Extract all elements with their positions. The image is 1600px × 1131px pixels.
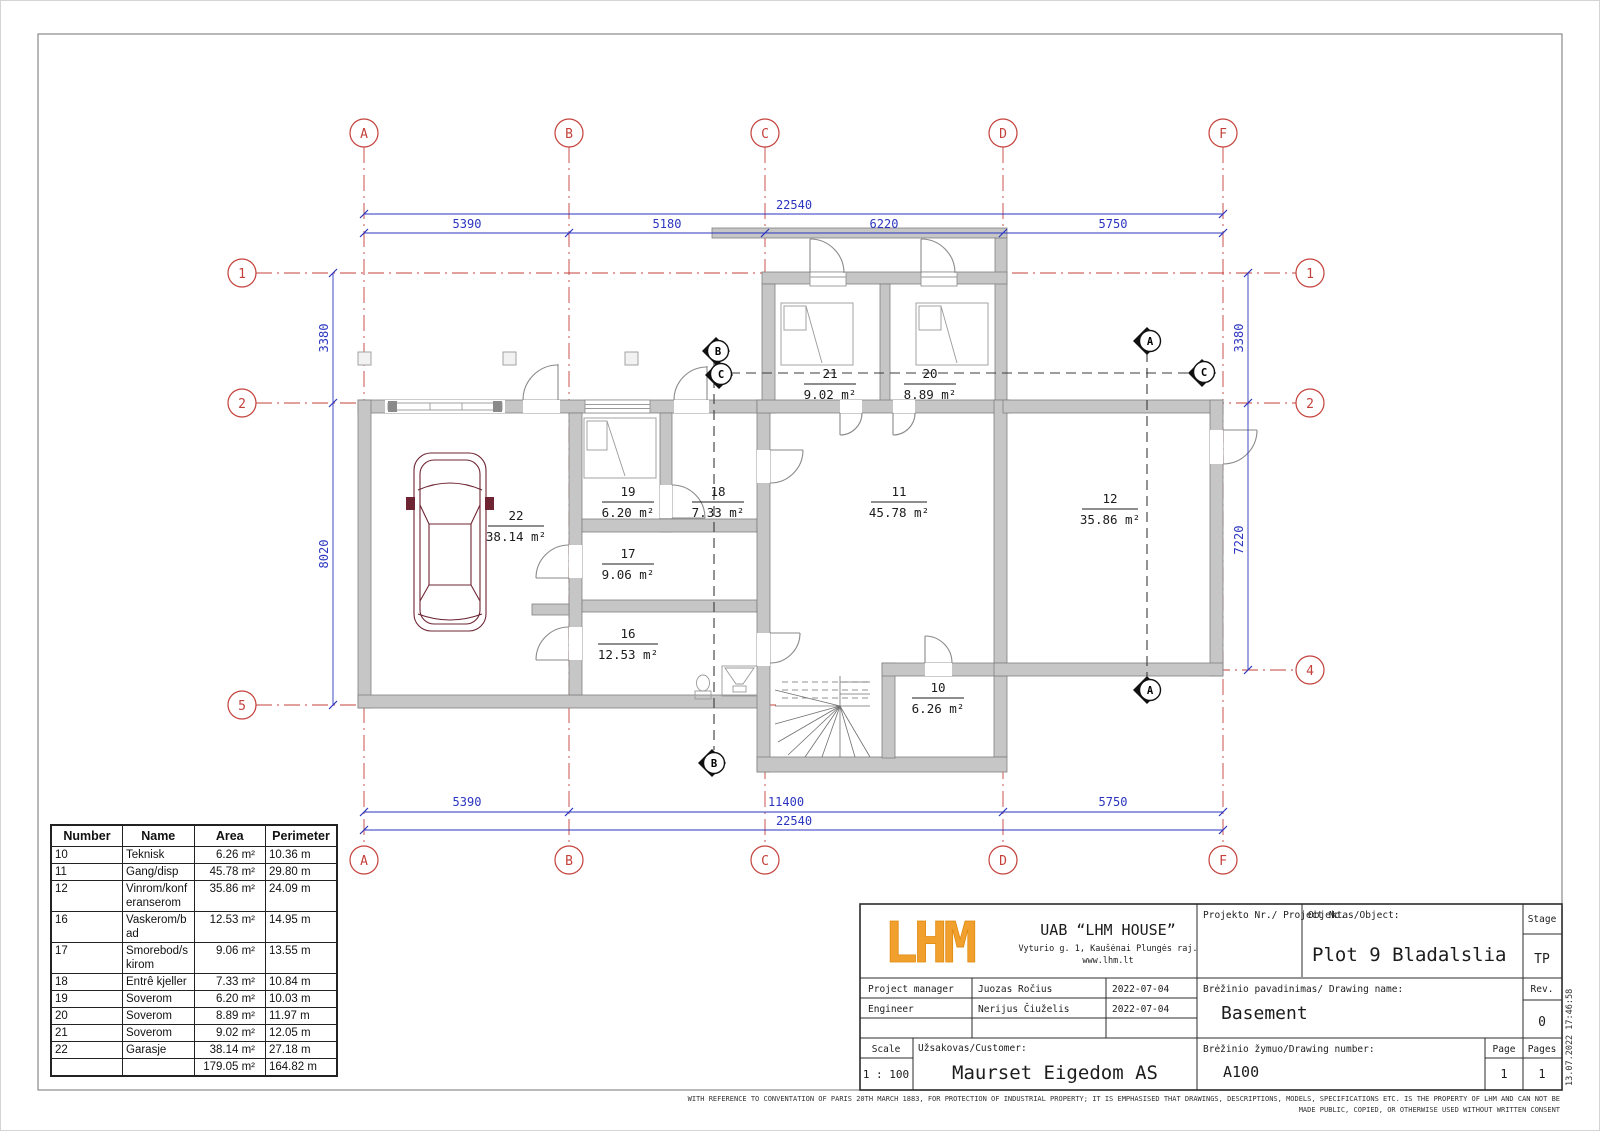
rev-label: Rev. [1531,984,1554,995]
schedule-cell: 10.03 m [266,991,338,1008]
grid-bubble-c-bottom: C [761,854,769,869]
dim-top-total: 22540 [776,198,812,212]
disclaimer-line2: MADE PUBLIC, COPIED, OR OTHERWISE USED W… [1299,1106,1561,1114]
customer-value: Maurset Eigedom AS [952,1062,1158,1084]
schedule-cell: 12 [51,881,123,912]
schedule-cell: 22 [51,1042,123,1059]
customer-label: Užsakovas/Customer: [918,1043,1027,1054]
drawing-number-value: A100 [1223,1063,1259,1081]
schedule-cell: 10.36 m [266,847,338,864]
drawing-name-value: Basement [1221,1003,1308,1024]
dim-left-2: 8020 [317,540,331,569]
dim-left-1: 3380 [317,324,331,353]
dim-bottom-seg-1: 5390 [453,795,482,809]
schedule-cell: 12.53 m² [194,912,266,943]
engineer-value: Nerijus Čiuželis [978,1003,1070,1015]
company-name: UAB “LHM HOUSE” [1040,921,1175,939]
svg-text:9.06 m²: 9.06 m² [602,567,655,582]
grid-bubble-b-top: B [565,127,573,142]
schedule-cell: 9.02 m² [194,1025,266,1042]
grid-bubble-f-bottom: F [1219,854,1227,869]
svg-text:38.14 m²: 38.14 m² [486,529,546,544]
grid-bubble-b-bottom: B [565,854,573,869]
schedule-cell: 45.78 m² [194,864,266,881]
svg-text:22: 22 [508,508,523,523]
section-label-a2: A [1147,685,1154,697]
lhm-logo: LHM [884,911,975,976]
object-label: Objektas/Object: [1308,910,1400,921]
schedule-cell: Soverom [123,1008,195,1025]
schedule-cell: 10.84 m [266,974,338,991]
schedule-row: 10Teknisk6.26 m²10.36 m [51,847,337,864]
room-schedule-table: NumberNameAreaPerimeter 10Teknisk6.26 m²… [50,824,338,1077]
svg-text:9.02 m²: 9.02 m² [804,387,857,402]
company-address: Vyturio g. 1, Kaušėnai Plungės raj. [1018,943,1197,954]
schedule-cell: 13.55 m [266,943,338,974]
schedule-cell: 12.05 m [266,1025,338,1042]
schedule-cell: Soverom [123,991,195,1008]
svg-text:35.86 m²: 35.86 m² [1080,512,1140,527]
svg-text:20: 20 [922,366,937,381]
schedule-row: 16Vaskerom/bad12.53 m²14.95 m [51,912,337,943]
schedule-cell: 14.95 m [266,912,338,943]
schedule-row: 17Smorebod/skirom9.06 m²13.55 m [51,943,337,974]
schedule-cell: Smorebod/skirom [123,943,195,974]
dim-top-seg-1: 5390 [453,217,482,231]
section-label-c: C [718,369,724,381]
engineer-label: Engineer [868,1004,914,1015]
schedule-cell: 16 [51,912,123,943]
schedule-cell: Garasje [123,1042,195,1059]
schedule-cell: 6.26 m² [194,847,266,864]
schedule-row: 18Entrê kjeller7.33 m²10.84 m [51,974,337,991]
schedule-cell: 24.09 m [266,881,338,912]
section-label-c2: C [1201,367,1207,379]
grid-bubble-a-bottom: A [360,854,368,869]
grid-bubble-5-left: 5 [238,699,246,714]
svg-text:12: 12 [1102,491,1117,506]
schedule-col-header: Area [194,825,266,847]
drawing-name-label: Brėžinio pavadinimas/ Drawing name: [1203,984,1403,995]
stage-label: Stage [1528,914,1557,925]
section-label-b2: B [711,758,717,770]
schedule-cell: 11.97 m [266,1008,338,1025]
schedule-header-row: NumberNameAreaPerimeter [51,825,337,847]
svg-text:16: 16 [620,626,635,641]
drawing-sheet: B C B A A C 2238.14 m² 196. [0,0,1600,1131]
schedule-cell: Vaskerom/bad [123,912,195,943]
schedule-cell: 19 [51,991,123,1008]
schedule-row: 11Gang/disp45.78 m²29.80 m [51,864,337,881]
schedule-cell: 17 [51,943,123,974]
grid-bubble-4-right: 4 [1306,664,1314,679]
project-manager-label: Project manager [868,984,954,995]
schedule-cell: 11 [51,864,123,881]
schedule-cell: 21 [51,1025,123,1042]
schedule-cell: 9.06 m² [194,943,266,974]
title-block: LHM UAB “LHM HOUSE” Vyturio g. 1, Kaušėn… [860,904,1562,1090]
plot-timestamp: 13.07.2022 17:46:58 [1565,989,1575,1086]
schedule-col-header: Perimeter [266,825,338,847]
schedule-row: 179.05 m²164.82 m [51,1059,337,1077]
svg-text:6.26 m²: 6.26 m² [912,701,965,716]
schedule-cell: 164.82 m [266,1059,338,1077]
schedule-col-header: Name [123,825,195,847]
grid-bubble-d-top: D [999,127,1007,142]
svg-text:11: 11 [891,484,906,499]
schedule-row: 19Soverom6.20 m²10.03 m [51,991,337,1008]
schedule-cell: 7.33 m² [194,974,266,991]
schedule-cell: Vinrom/konferanserom [123,881,195,912]
svg-text:45.78 m²: 45.78 m² [869,505,929,520]
schedule-cell: Gang/disp [123,864,195,881]
dim-right-2: 7220 [1232,526,1246,555]
svg-text:8.89 m²: 8.89 m² [904,387,957,402]
dim-bottom-seg-3: 5750 [1099,795,1128,809]
stage-value: TP [1534,952,1550,967]
svg-text:17: 17 [620,546,635,561]
grid-bubble-2-left: 2 [238,397,246,412]
dim-right-1: 3380 [1232,324,1246,353]
page-value: 1 [1500,1067,1507,1081]
pages-value: 1 [1538,1067,1545,1081]
project-manager-date: 2022-07-04 [1112,984,1169,995]
schedule-cell: 38.14 m² [194,1042,266,1059]
schedule-cell: 6.20 m² [194,991,266,1008]
dim-bottom-seg-2: 11400 [768,795,804,809]
dim-bottom-total: 22540 [776,814,812,828]
engineer-date: 2022-07-04 [1112,1004,1169,1015]
company-website: www.lhm.lt [1082,956,1133,966]
grid-bubble-a-top: A [360,127,368,142]
schedule-cell: 10 [51,847,123,864]
svg-text:12.53 m²: 12.53 m² [598,647,658,662]
grid-bubble-2-right: 2 [1306,397,1314,412]
disclaimer-line1: WITH REFERENCE TO CONVENTATION OF PARIS … [688,1095,1560,1103]
object-value: Plot 9 Bladalslia [1312,944,1506,966]
scale-value: 1 : 100 [863,1068,909,1081]
schedule-cell [51,1059,123,1077]
page-label: Page [1493,1044,1516,1055]
grid-bubble-d-bottom: D [999,854,1007,869]
grid-bubble-1-right: 1 [1306,267,1314,282]
svg-text:18: 18 [710,484,725,499]
svg-text:19: 19 [620,484,635,499]
schedule-cell: Soverom [123,1025,195,1042]
schedule-cell: 27.18 m [266,1042,338,1059]
grid-bubble-1-left: 1 [238,267,246,282]
schedule-cell: 35.86 m² [194,881,266,912]
schedule-row: 22Garasje38.14 m²27.18 m [51,1042,337,1059]
schedule-row: 12Vinrom/konferanserom35.86 m²24.09 m [51,881,337,912]
schedule-cell: Teknisk [123,847,195,864]
schedule-col-header: Number [51,825,123,847]
grid-bubble-f-top: F [1219,127,1227,142]
svg-text:10: 10 [930,680,945,695]
schedule-cell: 8.89 m² [194,1008,266,1025]
schedule-cell: Entrê kjeller [123,974,195,991]
schedule-cell: 18 [51,974,123,991]
section-label-b: B [715,346,721,358]
dim-top-seg-4: 5750 [1099,217,1128,231]
rev-value: 0 [1538,1015,1546,1030]
project-manager-value: Juozas Ročius [978,984,1052,995]
schedule-row: 21Soverom9.02 m²12.05 m [51,1025,337,1042]
svg-text:21: 21 [822,366,837,381]
schedule-row: 20Soverom8.89 m²11.97 m [51,1008,337,1025]
dim-top-seg-2: 5180 [653,217,682,231]
scale-label: Scale [872,1044,901,1055]
svg-text:7.33 m²: 7.33 m² [692,505,745,520]
section-label-a: A [1147,336,1154,348]
schedule-cell: 179.05 m² [194,1059,266,1077]
grid-bubble-c-top: C [761,127,769,142]
drawing-number-label: Brėžinio žymuo/Drawing number: [1203,1044,1375,1055]
dim-top-seg-3: 6220 [870,217,899,231]
schedule-cell [123,1059,195,1077]
svg-text:6.20 m²: 6.20 m² [602,505,655,520]
schedule-cell: 20 [51,1008,123,1025]
pages-label: Pages [1528,1044,1557,1055]
schedule-cell: 29.80 m [266,864,338,881]
